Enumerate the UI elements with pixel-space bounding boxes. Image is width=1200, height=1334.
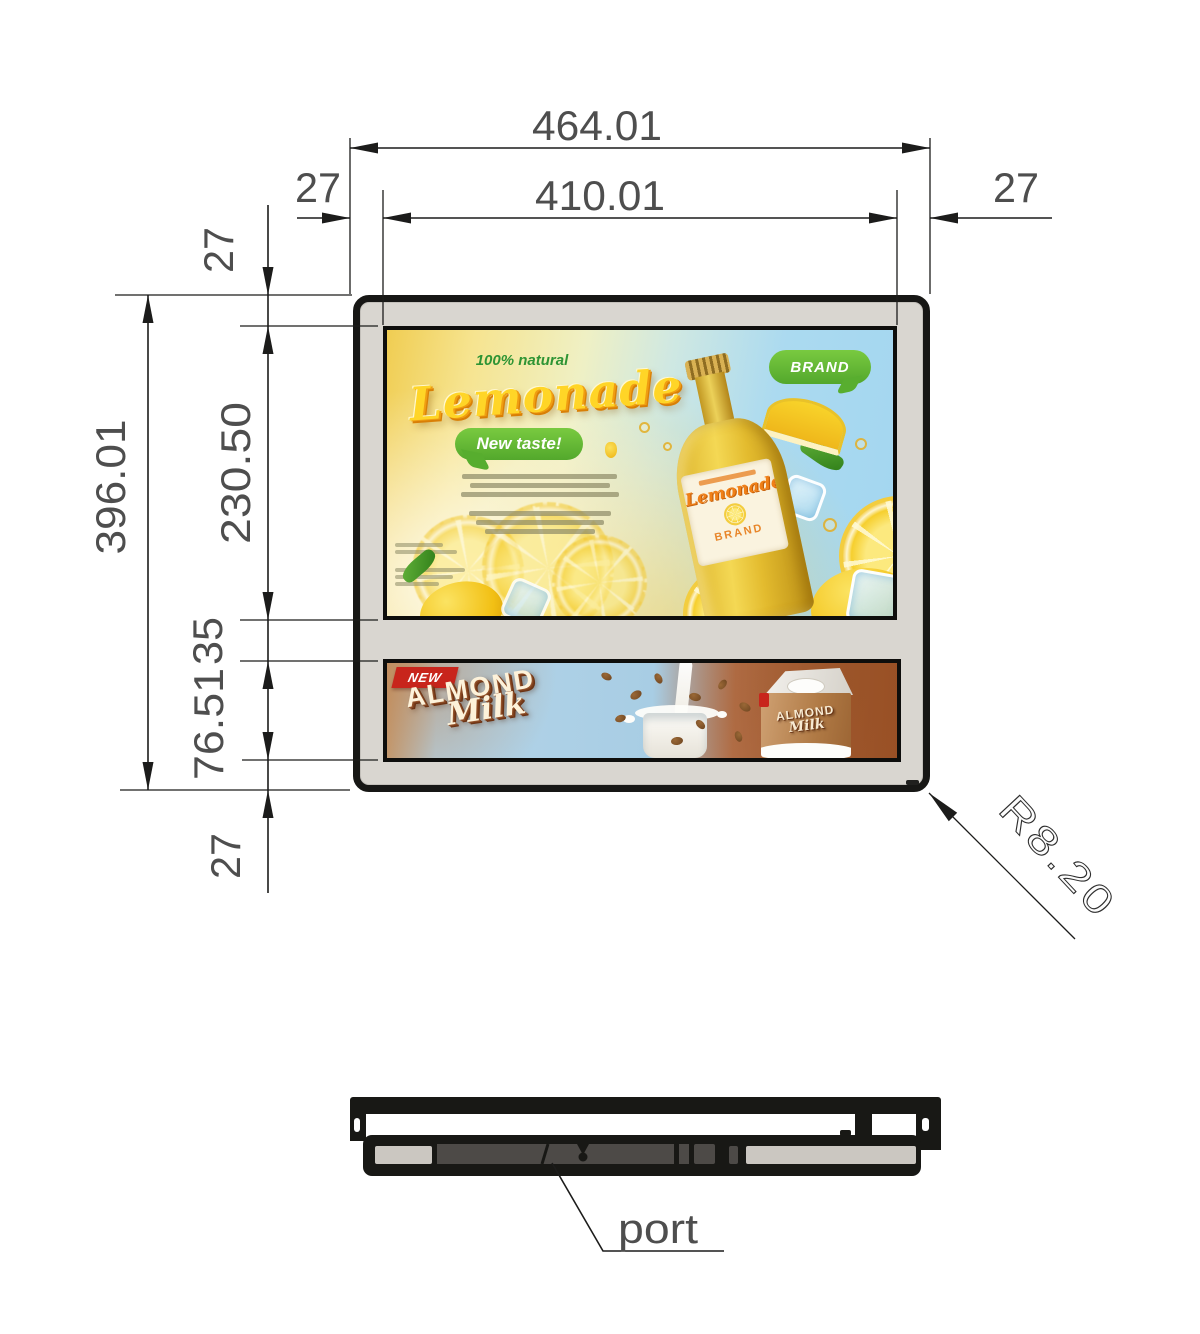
text-line [395,582,439,586]
dim-overall-width: 464.01 [532,102,662,149]
port-callout: port [552,1163,724,1252]
dim-margin-left: 27 [295,164,341,211]
text-line [485,529,595,534]
bubble-ring [639,422,650,433]
brand-bubble: BRAND [769,350,871,384]
milk-carton: ALMOND Milk [759,668,853,758]
technical-drawing-page: 100% natural Lemonade New taste! [0,0,1200,1334]
main-screen: 100% natural Lemonade New taste! [383,326,897,620]
carton-splash [761,743,851,758]
bubble-ring [855,438,867,450]
label-lemon-icon [722,501,748,527]
text-line [476,520,604,525]
almond-ad: NEW ALMOND Milk [387,663,897,758]
new-taste-bubble: New taste! [455,428,583,460]
bottle-label: Lemonade BRAND [680,458,789,567]
new-taste-label: New taste! [476,434,561,454]
radius-callout: R8.20 [929,787,1125,939]
dim-corner-radius: R8.20 [990,787,1124,927]
dim-margin-right: 27 [993,164,1039,211]
dim-margin-bottom: 27 [202,833,249,879]
dim-margin-top: 27 [195,227,242,273]
port-label: port [618,1205,698,1252]
dim-screen2-height: 76.51 [185,668,232,780]
bar-screen: NEW ALMOND Milk [383,659,901,762]
lemonade-ad: 100% natural Lemonade New taste! [387,330,893,616]
dim-overall-height: 396.01 [87,420,134,555]
dim-inner-width: 410.01 [535,172,665,219]
milk-droplet [717,711,727,718]
brand-bubble-label: BRAND [790,359,849,376]
device-side-view [350,1097,941,1176]
carton-label: ALMOND Milk [761,702,851,739]
dim-gap: 35 [184,617,231,665]
juice-drop [605,442,617,458]
text-line [470,483,610,488]
dim-screen1-height: 230.50 [212,402,259,544]
text-line [395,543,443,547]
body-copy-block [457,470,622,534]
bubble-ring [823,518,837,532]
carton-body: ALMOND Milk [761,693,851,758]
ir-sensor-dot [906,780,919,785]
text-line [469,511,611,516]
carton-badge [759,693,769,707]
text-line [461,492,619,497]
text-line [462,474,617,479]
port-leader-line [552,1163,724,1251]
ice-cube [845,568,893,616]
